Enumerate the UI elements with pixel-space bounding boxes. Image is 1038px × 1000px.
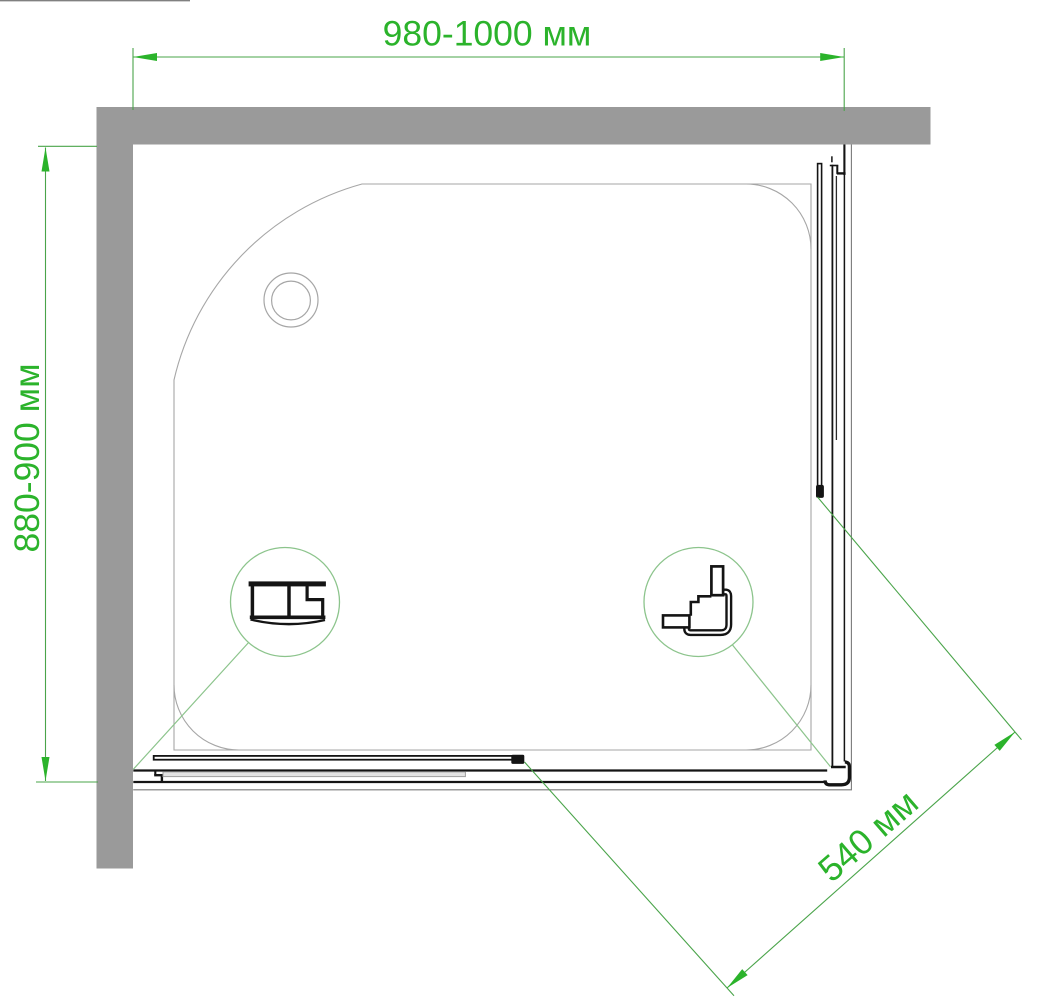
svg-text:880-900 мм: 880-900 мм [7, 364, 47, 553]
svg-text:980-1000 мм: 980-1000 мм [383, 14, 592, 54]
